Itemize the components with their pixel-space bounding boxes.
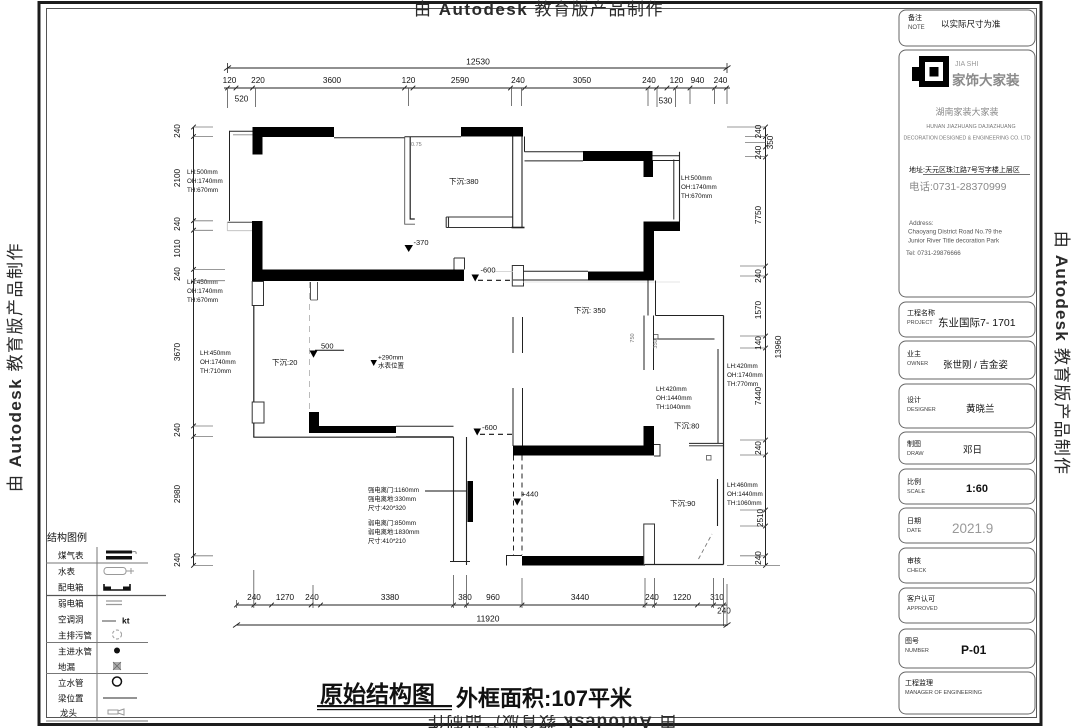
svg-text:LH:420mm: LH:420mm xyxy=(727,363,758,370)
svg-text:940: 940 xyxy=(691,76,705,85)
svg-text:7750: 7750 xyxy=(754,205,763,224)
svg-text:NOTE: NOTE xyxy=(908,25,925,31)
svg-text:240: 240 xyxy=(714,76,728,85)
svg-text:DESIGNER: DESIGNER xyxy=(907,407,936,413)
svg-text:1270: 1270 xyxy=(276,593,295,602)
svg-text:11920: 11920 xyxy=(476,614,499,624)
svg-text:DECORATION DESIGNED & ENGINEER: DECORATION DESIGNED & ENGINEERING CO. LT… xyxy=(904,136,1031,142)
svg-text:960: 960 xyxy=(486,593,500,602)
svg-text:电话:0731-28370999: 电话:0731-28370999 xyxy=(909,180,1007,193)
svg-text:750: 750 xyxy=(630,333,636,342)
svg-text:1570: 1570 xyxy=(754,300,763,319)
svg-text:LH:460mm: LH:460mm xyxy=(727,482,758,489)
svg-text:煤气表: 煤气表 xyxy=(58,551,84,561)
svg-text:LH:500mm: LH:500mm xyxy=(187,169,218,176)
svg-text:Address:: Address: xyxy=(909,220,934,227)
svg-text:240: 240 xyxy=(754,551,763,565)
svg-text:12530: 12530 xyxy=(466,57,490,67)
svg-text:Tel: 0731-29876666: Tel: 0731-29876666 xyxy=(906,250,961,257)
svg-text:下沉:90: 下沉:90 xyxy=(670,499,695,508)
svg-text:下沉:20: 下沉:20 xyxy=(272,358,297,367)
svg-text:OH:1440mm: OH:1440mm xyxy=(656,395,692,402)
svg-text:主进水管: 主进水管 xyxy=(58,647,92,657)
svg-text:Junior River Title decoration: Junior River Title decoration Park xyxy=(908,238,1000,245)
svg-text:业主: 业主 xyxy=(907,349,921,358)
svg-text:240: 240 xyxy=(305,593,319,602)
svg-text:240: 240 xyxy=(754,441,763,455)
svg-text:外框面积:107平米: 外框面积:107平米 xyxy=(456,686,633,711)
svg-text:240: 240 xyxy=(173,217,182,231)
svg-text:下沉:80: 下沉:80 xyxy=(674,422,699,431)
svg-text:HUNAN JIAZHUANG DAJIAZHUANG: HUNAN JIAZHUANG DAJIAZHUANG xyxy=(926,124,1015,130)
svg-text:家饰大家装: 家饰大家装 xyxy=(952,72,1020,88)
svg-text:240: 240 xyxy=(173,553,182,567)
svg-text:350: 350 xyxy=(766,135,775,149)
svg-text:工程名称: 工程名称 xyxy=(907,308,935,317)
svg-text:水表: 水表 xyxy=(58,567,76,577)
svg-text:OH:1740mm: OH:1740mm xyxy=(200,359,236,366)
svg-text:尺寸:420*320: 尺寸:420*320 xyxy=(368,503,406,512)
svg-text:水表位置: 水表位置 xyxy=(378,361,405,370)
svg-text:1:60: 1:60 xyxy=(966,483,988,495)
svg-text:配电箱: 配电箱 xyxy=(58,583,84,593)
svg-text:立水管: 立水管 xyxy=(58,678,84,688)
svg-text:TH:710mm: TH:710mm xyxy=(200,368,231,375)
svg-text:由 Autodesk 教育版产品制作: 由 Autodesk 教育版产品制作 xyxy=(414,0,664,19)
svg-text:1220: 1220 xyxy=(673,593,692,602)
svg-text:制图: 制图 xyxy=(907,439,921,448)
svg-text:由 Autodesk 教育版产品制作: 由 Autodesk 教育版产品制作 xyxy=(1052,231,1071,476)
svg-text:OH:1740mm: OH:1740mm xyxy=(187,288,223,295)
svg-text:1010: 1010 xyxy=(173,239,182,258)
svg-text:240: 240 xyxy=(173,267,182,281)
svg-text:地址:天元区珠江路7号写字楼上层区: 地址:天元区珠江路7号写字楼上层区 xyxy=(909,165,1020,174)
svg-text:OH:1740mm: OH:1740mm xyxy=(681,184,717,191)
svg-text:OH:1740mm: OH:1740mm xyxy=(187,178,223,185)
svg-text:图号: 图号 xyxy=(905,637,919,645)
svg-text:以实际尺寸为准: 以实际尺寸为准 xyxy=(941,19,1001,29)
svg-text:-600: -600 xyxy=(481,266,496,275)
svg-text:APPROVED: APPROVED xyxy=(907,606,938,612)
svg-text:380: 380 xyxy=(458,593,472,602)
svg-text:LH:450mm: LH:450mm xyxy=(200,350,231,357)
svg-text:下沉: 350: 下沉: 350 xyxy=(574,306,606,315)
svg-text:湖南家装大家装: 湖南家装大家装 xyxy=(935,106,998,117)
svg-text:-600: -600 xyxy=(482,423,497,432)
svg-text:邓日: 邓日 xyxy=(963,445,982,456)
svg-text:+440: +440 xyxy=(522,490,539,499)
svg-text:3670: 3670 xyxy=(173,342,182,361)
svg-text:240: 240 xyxy=(645,593,659,602)
svg-text:350: 350 xyxy=(653,339,659,348)
svg-text:工程监理: 工程监理 xyxy=(905,678,933,687)
svg-text:LH:500mm: LH:500mm xyxy=(681,175,712,182)
svg-text:尺寸:410*210: 尺寸:410*210 xyxy=(368,536,406,545)
svg-text:120: 120 xyxy=(402,76,416,85)
svg-text:kt: kt xyxy=(122,616,130,626)
svg-text:原始结构图: 原始结构图 xyxy=(320,681,435,707)
svg-text:240: 240 xyxy=(247,593,261,602)
svg-text:PROJECT: PROJECT xyxy=(907,320,933,326)
svg-text:13960: 13960 xyxy=(774,335,783,358)
svg-text:-370: -370 xyxy=(414,238,429,247)
svg-text:备注: 备注 xyxy=(908,13,922,22)
svg-text:+290mm: +290mm xyxy=(378,355,403,362)
svg-text:3380: 3380 xyxy=(381,593,400,602)
svg-text:0.75: 0.75 xyxy=(411,142,422,148)
svg-text:JIA SHI: JIA SHI xyxy=(955,61,978,68)
svg-text:东业国际7- 1701: 东业国际7- 1701 xyxy=(938,316,1016,329)
svg-text:2590: 2590 xyxy=(451,76,470,85)
svg-text:TH:1040mm: TH:1040mm xyxy=(656,404,691,411)
svg-text:2980: 2980 xyxy=(173,484,182,503)
svg-text:3050: 3050 xyxy=(573,76,592,85)
svg-text:240: 240 xyxy=(754,124,763,138)
svg-text:240: 240 xyxy=(511,76,525,85)
svg-text:强电离门:1160mm: 强电离门:1160mm xyxy=(368,485,419,494)
svg-text:LH:420mm: LH:420mm xyxy=(656,386,687,393)
svg-text:220: 220 xyxy=(251,76,265,85)
svg-text:设计: 设计 xyxy=(907,395,921,404)
svg-text:240: 240 xyxy=(754,269,763,283)
svg-text:空调洞: 空调洞 xyxy=(58,615,84,625)
svg-text:由 Autodesk 教育版产品制作: 由 Autodesk 教育版产品制作 xyxy=(427,713,677,728)
svg-text:P-01: P-01 xyxy=(961,643,987,657)
svg-text:客户认可: 客户认可 xyxy=(907,594,935,603)
svg-text:2100: 2100 xyxy=(173,168,182,187)
svg-text:比例: 比例 xyxy=(907,477,921,486)
svg-text:240: 240 xyxy=(642,76,656,85)
svg-text:弱电离地:1830mm: 弱电离地:1830mm xyxy=(368,527,419,536)
svg-text:主排污管: 主排污管 xyxy=(58,631,92,641)
svg-text:Chaoyang District Road No.79 t: Chaoyang District Road No.79 the xyxy=(908,229,1002,236)
svg-text:龙头: 龙头 xyxy=(60,708,78,718)
svg-text:240: 240 xyxy=(173,124,182,138)
svg-text:7440: 7440 xyxy=(754,386,763,405)
svg-text:DRAW: DRAW xyxy=(907,451,924,457)
svg-text:3600: 3600 xyxy=(323,76,342,85)
svg-text:TH:670mm: TH:670mm xyxy=(681,193,712,200)
svg-text:530: 530 xyxy=(659,97,673,106)
svg-text:NUMBER: NUMBER xyxy=(905,648,929,654)
svg-text:审核: 审核 xyxy=(907,556,921,565)
svg-text:OWNER: OWNER xyxy=(907,361,928,367)
svg-text:520: 520 xyxy=(235,95,249,104)
svg-text:地漏: 地漏 xyxy=(58,662,76,672)
svg-text:OH:1440mm: OH:1440mm xyxy=(727,491,763,498)
svg-text:240: 240 xyxy=(173,423,182,437)
svg-text:2510: 2510 xyxy=(756,508,765,527)
svg-text:3440: 3440 xyxy=(571,593,590,602)
svg-text:2021.9: 2021.9 xyxy=(952,521,993,536)
svg-text:140: 140 xyxy=(754,336,763,350)
svg-text:日期: 日期 xyxy=(907,517,921,525)
svg-text:弱电离门:850mm: 弱电离门:850mm xyxy=(368,518,416,527)
svg-text:由 Autodesk 教育版产品制作: 由 Autodesk 教育版产品制作 xyxy=(6,242,25,492)
svg-text:DATE: DATE xyxy=(907,528,922,534)
svg-text:MANAGER OF ENGINEERING: MANAGER OF ENGINEERING xyxy=(905,690,982,696)
svg-text:OH:1740mm: OH:1740mm xyxy=(727,372,763,379)
svg-text:TH:670mm: TH:670mm xyxy=(187,297,218,304)
svg-text:120: 120 xyxy=(223,76,237,85)
svg-text:结构图例: 结构图例 xyxy=(47,531,87,544)
svg-text:SCALE: SCALE xyxy=(907,489,925,495)
svg-text:张世刚 / 吉金姿: 张世刚 / 吉金姿 xyxy=(943,359,1008,371)
svg-text:CHECK: CHECK xyxy=(907,568,927,574)
svg-text:TH:1060mm: TH:1060mm xyxy=(727,500,762,507)
svg-text:240: 240 xyxy=(717,607,731,616)
svg-text:500: 500 xyxy=(321,342,334,351)
svg-text:TH:670mm: TH:670mm xyxy=(187,187,218,194)
svg-text:310: 310 xyxy=(710,593,724,602)
svg-text:240: 240 xyxy=(754,145,763,159)
svg-text:弱电箱: 弱电箱 xyxy=(58,599,84,609)
svg-text:强电离地:330mm: 强电离地:330mm xyxy=(368,494,416,503)
svg-text:梁位置: 梁位置 xyxy=(58,694,84,704)
svg-text:黄晓兰: 黄晓兰 xyxy=(966,403,995,415)
svg-text:下沉:380: 下沉:380 xyxy=(449,177,479,186)
svg-text:120: 120 xyxy=(670,76,684,85)
